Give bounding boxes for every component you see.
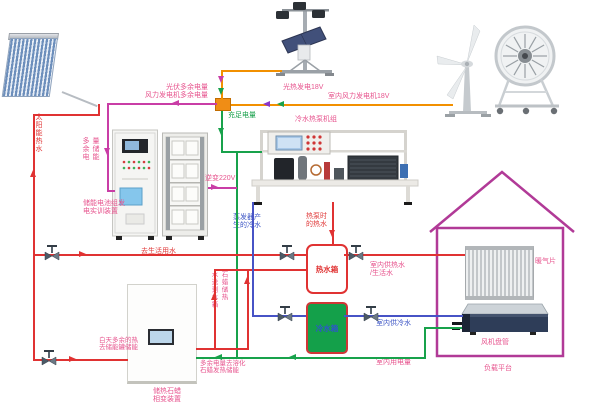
label-wind-excess-power: 风力发电机多余电量 <box>145 92 208 100</box>
flow-arrow-u <box>211 293 217 300</box>
label-heatpump-hot-2: 的热水 <box>306 221 327 229</box>
pipe-evaporator-cold <box>252 202 254 317</box>
pipe-paraffin-out <box>196 348 249 350</box>
power-junction-box <box>215 98 231 111</box>
label-indoor-hot-water-1: 室内供热水 <box>370 262 405 270</box>
label-solar-hot-water: 太阳能热水 <box>34 113 42 153</box>
label-paraffin-device-1: 储热石蜡 <box>146 388 188 396</box>
flow-arrow-l <box>289 354 296 360</box>
wire-house-power-v <box>424 327 426 359</box>
label-excess-storage-col1: 多余电 <box>81 137 89 161</box>
label-paraffin-device-2: 相变装置 <box>146 396 188 404</box>
valve-icon <box>363 306 379 324</box>
pipe-domestic-water <box>33 254 306 256</box>
pipe-solar-down-2 <box>33 114 35 361</box>
wire-house-power-h <box>424 327 462 329</box>
flow-arrow-d <box>329 230 335 237</box>
solar-collector-image <box>0 0 110 110</box>
flow-arrow-d <box>218 88 224 95</box>
flow-arrow-u <box>244 277 250 284</box>
label-day-excess-heat-2: 去储能罐储能 <box>99 344 138 352</box>
label-storage-device-1: 储能电池组发 <box>83 200 125 208</box>
cold-tank-label: 冷水箱 <box>316 323 339 334</box>
pipe-paraffin-riser-1 <box>214 269 216 350</box>
wire-excess-to-storage-h <box>107 103 217 105</box>
label-fan-coil: 风机盘管 <box>481 339 509 347</box>
flow-arrow-r <box>211 184 218 190</box>
cold-water-tank: 冷水箱 <box>306 302 348 354</box>
pipe-heatpump-hot <box>332 202 334 244</box>
flow-arrow-r <box>69 356 76 362</box>
flow-arrow-d <box>218 76 224 83</box>
wire-pv-horizontal <box>221 70 282 72</box>
hot-water-tank: 热水箱 <box>306 244 348 294</box>
flow-arrow-l <box>277 101 284 107</box>
energy-system-diagram: 热水箱 冷水箱 光伏多余电量 风力发电机多余电量 光热发电18V 室内风力发电机… <box>0 0 600 419</box>
pipe-cold-supply <box>344 315 463 317</box>
collector-stand <box>62 91 98 107</box>
wire-excess-to-storage-in <box>107 190 115 192</box>
label-pv-excess-power: 光伏多余电量 <box>150 84 208 92</box>
valve-icon <box>44 245 60 263</box>
flow-arrow-r <box>79 251 86 257</box>
label-radiator: 暖气片 <box>535 258 556 266</box>
flow-arrow-d <box>218 128 224 135</box>
label-pv-generation: 光热发电18V <box>283 84 323 92</box>
label-paraffin-to-tank-col2: 石蜡储热 <box>219 271 227 301</box>
label-indoor-hot-water-2: /生活水 <box>370 270 393 278</box>
wire-bottom-power-bus <box>196 357 425 359</box>
label-excess-storage-col2: 量储能 <box>91 137 99 161</box>
label-indoor-cold-water: 室内供冷水 <box>376 320 411 328</box>
radiator-image <box>465 246 534 300</box>
paraffin-display <box>148 329 174 345</box>
battery-cabinets-image <box>112 126 208 242</box>
label-indoor-power: 室内用电量 <box>376 359 411 367</box>
pipe-solar-h <box>33 114 100 116</box>
label-heatpump-hot-1: 热泵时 <box>306 213 327 221</box>
flow-arrow-l <box>215 354 222 360</box>
flow-arrow-u <box>30 170 36 177</box>
valve-icon <box>41 350 57 368</box>
hot-tank-label: 热水箱 <box>316 264 339 275</box>
label-excess-melt-2: 石蜡发热储能 <box>200 367 239 375</box>
collector-tubes <box>2 38 58 97</box>
flow-arrow-l <box>263 101 270 107</box>
valve-icon <box>279 245 295 263</box>
valve-icon <box>348 245 364 263</box>
valve-icon <box>277 306 293 324</box>
label-sufficient-power: 充足电量 <box>228 112 256 120</box>
heat-pump-image <box>246 124 422 208</box>
paraffin-storage-image <box>127 284 197 384</box>
label-chiller-heat-pump: 冷水热泵机组 <box>295 116 337 124</box>
label-wind-generation: 室内风力发电机18V <box>328 93 389 101</box>
flow-arrow-d <box>104 148 110 155</box>
label-inverter-220v: 逆变220V <box>205 175 235 183</box>
wire-pv-vertical <box>221 70 223 100</box>
wire-heatpump-power <box>221 151 262 153</box>
flow-arrow-l <box>172 100 179 106</box>
fan-coil-image <box>450 296 550 342</box>
label-load-platform: 负载平台 <box>484 365 512 373</box>
label-storage-device-2: 电实训装置 <box>83 208 118 216</box>
pipe-hot-tank-in <box>214 269 306 271</box>
